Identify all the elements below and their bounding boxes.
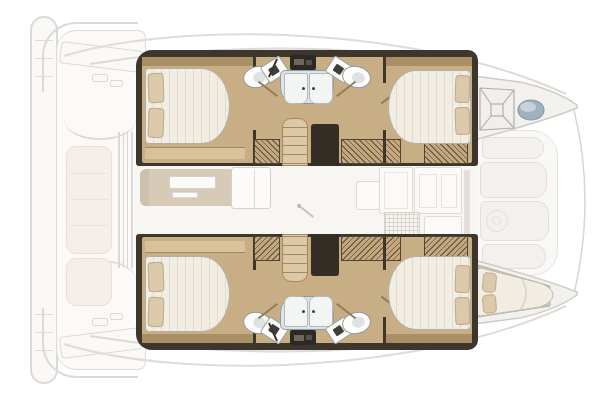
aft-bench-small bbox=[66, 258, 112, 306]
companionway-entry bbox=[311, 234, 339, 276]
aft-cabin-bench bbox=[145, 241, 245, 253]
partition-wall bbox=[383, 57, 386, 83]
deck-emblem bbox=[486, 210, 508, 232]
louvered-locker bbox=[341, 236, 401, 261]
shower-door bbox=[309, 73, 333, 104]
hull-starboard bbox=[136, 50, 478, 166]
fwd-cabin-shelf bbox=[384, 334, 472, 343]
pillow bbox=[147, 73, 164, 104]
bow-bridle-line bbox=[574, 110, 585, 294]
aft-cabin-bench bbox=[145, 147, 245, 159]
anchor-locker-center bbox=[491, 104, 503, 116]
louvered-locker bbox=[341, 139, 401, 164]
shower-door bbox=[284, 296, 308, 327]
foredeck-cushion bbox=[482, 137, 544, 159]
bow-hatch-highlight bbox=[520, 102, 536, 112]
shower bbox=[280, 70, 334, 104]
aft-bench bbox=[66, 146, 112, 254]
shower-door bbox=[284, 73, 308, 104]
forepeak-duvet-fold bbox=[520, 279, 526, 310]
pillow bbox=[455, 107, 471, 136]
galley-counter bbox=[414, 167, 462, 214]
anchor-locker-braces bbox=[480, 88, 514, 130]
louvered-locker bbox=[254, 236, 280, 261]
foredeck-cushion bbox=[482, 244, 546, 269]
vanity-unit bbox=[290, 330, 316, 345]
foredeck-cushion bbox=[480, 162, 547, 198]
hull-port bbox=[136, 234, 478, 350]
deck-hatch bbox=[110, 80, 123, 87]
shower bbox=[280, 296, 334, 330]
anchor-locker bbox=[480, 88, 514, 130]
pillow bbox=[455, 297, 471, 326]
galley-unit bbox=[379, 167, 413, 214]
vanity-unit bbox=[290, 55, 316, 70]
fwd-cabin-shelf bbox=[384, 57, 472, 66]
companionway-stairs bbox=[282, 234, 308, 282]
saloon-tray bbox=[172, 192, 198, 198]
deck-hatch bbox=[92, 74, 108, 82]
louvered-locker bbox=[424, 236, 468, 257]
pillow bbox=[147, 297, 164, 328]
forepeak-pillow bbox=[482, 295, 496, 314]
companionway-stairs bbox=[282, 118, 308, 166]
partition-wall bbox=[383, 237, 386, 270]
bow-hatch bbox=[518, 100, 544, 120]
pillow bbox=[455, 265, 471, 294]
louvered-locker bbox=[254, 139, 280, 164]
pillow bbox=[455, 75, 471, 104]
aft-cabin-shelf bbox=[142, 57, 254, 66]
saloon-table bbox=[169, 176, 216, 189]
saloon-aft-door-louvers bbox=[118, 132, 133, 268]
companionway-entry bbox=[311, 124, 339, 166]
galley-island bbox=[231, 167, 271, 209]
galley-unit-small bbox=[356, 181, 380, 210]
deck-hatch bbox=[92, 318, 108, 326]
aft-cabin-shelf bbox=[142, 334, 254, 343]
partition-wall bbox=[383, 130, 386, 163]
partition-wall bbox=[383, 317, 386, 343]
pillow bbox=[147, 108, 164, 139]
shower-door bbox=[309, 296, 333, 327]
catamaran-floor-plan bbox=[0, 0, 600, 400]
louvered-locker bbox=[424, 143, 468, 164]
pillow bbox=[147, 262, 164, 293]
deck-hatch bbox=[110, 313, 123, 320]
